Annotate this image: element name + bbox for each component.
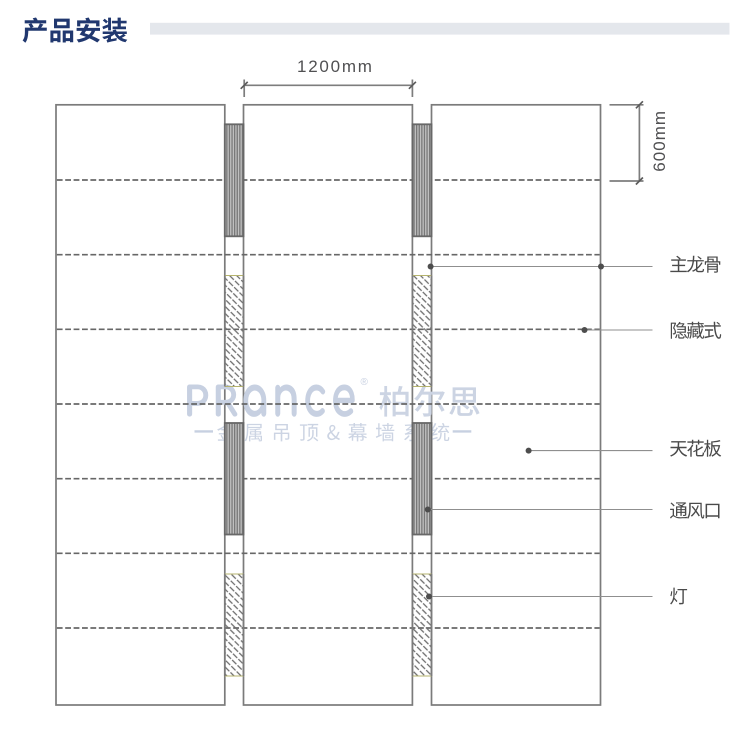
svg-text:600mm: 600mm <box>650 110 669 172</box>
svg-text:®: ® <box>361 377 369 388</box>
svg-text:1200mm: 1200mm <box>297 57 374 76</box>
